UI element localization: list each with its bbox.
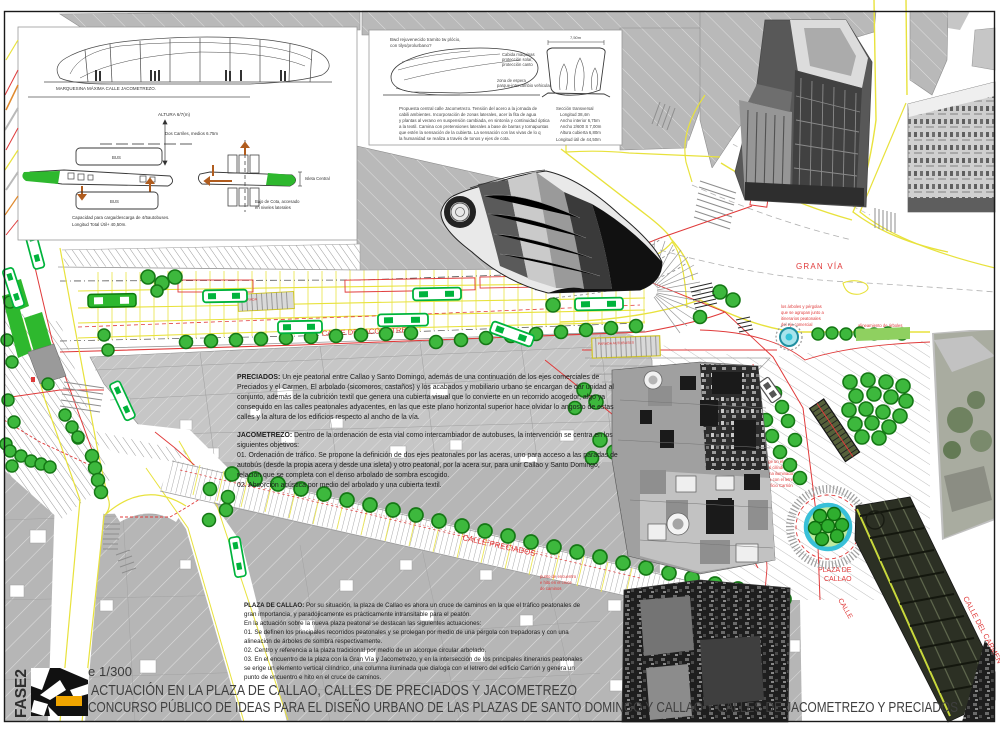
svg-text:alineación de árboles de sombr: alineación de árboles de sombra respecti…	[244, 638, 383, 645]
svg-text:e hito en el cruce: e hito en el cruce	[540, 580, 573, 585]
svg-text:PLAZA DE: PLAZA DE	[818, 567, 852, 574]
svg-text:JACOMETREZO: Dentro de la orde: JACOMETREZO: Dentro de la ordenación de …	[237, 432, 613, 439]
svg-text:protección canto: protección canto	[502, 62, 533, 67]
svg-text:ALTURA 6/7(m): ALTURA 6/7(m)	[158, 112, 191, 117]
svg-text:01. Ordenación de tráfico. Se: 01. Ordenación de tráfico. Se propone la…	[237, 452, 618, 459]
svg-text:PLAZA DE CALLAO: Por su situac: PLAZA DE CALLAO: Por su situación, la pl…	[244, 602, 581, 609]
svg-text:alineamiento de árboles: alineamiento de árboles	[858, 323, 902, 328]
svg-text:ACTUACIÓN EN LA PLAZA DE CALLA: ACTUACIÓN EN LA PLAZA DE CALLAO, CALLES …	[91, 682, 577, 699]
svg-text:Longitud Total Útil+ 40,50m.: Longitud Total Útil+ 40,50m.	[72, 222, 126, 227]
svg-text:Dos Carriles, medios 6.75m: Dos Carriles, medios 6.75m	[165, 131, 218, 136]
svg-text:la humanidad se realiza a: la humanidad se realiza a través de tono…	[399, 136, 510, 141]
svg-text:de caminos: de caminos	[540, 586, 561, 591]
svg-text:Ancho interior 6,75m: Ancho interior 6,75m	[560, 118, 600, 123]
svg-text:Longitud 38,4m: Longitud 38,4m	[560, 112, 590, 117]
svg-text:Bwd rejuvenecido tramito tw p: Bwd rejuvenecido tramito tw plócio,	[390, 37, 461, 42]
svg-text:los árboles y pérgolas: los árboles y pérgolas	[781, 304, 822, 309]
svg-text:Longitud útil de 44,50m: Longitud útil de 44,50m	[556, 137, 601, 142]
svg-text:MARQUESINA MÁXIMA CALLE JAC: MARQUESINA MÁXIMA CALLE JACOMETREZO.	[56, 85, 156, 91]
svg-text:Isleta Central: Isleta Central	[305, 176, 330, 181]
svg-text:CALLAO: CALLAO	[824, 576, 852, 583]
svg-text:CONCURSO PÚBLICO DE IDEAS PARA: CONCURSO PÚBLICO DE IDEAS PARA EL DISEÑO…	[88, 699, 958, 716]
svg-text:En la actuación sobre la nueva: En la actuación sobre la nueva plaza pea…	[244, 620, 482, 627]
svg-text:que se agrupan junto a: que se agrupan junto a	[781, 310, 825, 315]
svg-text:punto de encuentro e hito en e: punto de encuentro e hito en el cruce de…	[244, 674, 382, 681]
svg-text:Ancho 2/600 S 7,00m: Ancho 2/600 S 7,00m	[560, 124, 602, 129]
svg-text:FASE2: FASE2	[13, 669, 30, 718]
svg-text:conseguido en las calles peato: conseguido en las calles peatonales adya…	[237, 404, 614, 411]
svg-text:con tilys/prolurbano?: con tilys/prolurbano?	[390, 43, 432, 48]
svg-text:se erige un elemento vertical: se erige un elemento vertical cilíndrico…	[244, 665, 575, 672]
svg-text:03. En el encuentro de la plaz: 03. En el encuentro de la plaza con la G…	[244, 656, 582, 663]
svg-text:02. Centro y referencia a la p: 02. Centro y referencia a la plaza tradi…	[244, 647, 486, 654]
svg-text:parque-intercambio vehicular: parque-intercambio vehicular	[497, 83, 552, 88]
svg-text:y plantas al verano en suspe: y plantas al verano en suspensión cambia…	[399, 118, 550, 123]
svg-text:Preciados y el Carmen. El arbo: Preciados y el Carmen. El arbolado (sico…	[237, 384, 614, 391]
svg-text:02. Absorción acústica por med: 02. Absorción acústica por medio del arb…	[237, 482, 442, 489]
svg-text:punto de encuentro: punto de encuentro	[540, 574, 577, 579]
svg-text:conjunto, además de la cubrici: conjunto, además de la cubrición textil …	[237, 394, 605, 401]
svg-text:Bajo de Cota, accesado: Bajo de Cota, accesado	[255, 199, 300, 204]
svg-text:01. Se definen los principales: 01. Se definen los principales recorrido…	[244, 629, 569, 636]
svg-text:PRECIADOS: Un eje peatonal ent: PRECIADOS: Un eje peatonal entre Callao …	[237, 374, 600, 381]
svg-text:BUS: BUS	[110, 199, 119, 204]
svg-text:Altura cubierta 6,80m: Altura cubierta 6,80m	[560, 130, 601, 135]
svg-text:Sección transversal: Sección transversal	[556, 106, 594, 111]
svg-text:GRAN VÍA: GRAN VÍA	[796, 262, 844, 271]
svg-text:cabili ambientes. Incorporació: cabili ambientes. Incorporación de zonas…	[399, 112, 537, 117]
svg-text:gran importancia, y paradójica: gran importancia, y paradójicamente es p…	[244, 611, 471, 618]
svg-text:que estén la sensación de: que estén la sensación de la cubierta. L…	[399, 130, 541, 135]
svg-text:e 1/300: e 1/300	[88, 664, 132, 679]
svg-text:a la textil. Camina con pr: a la textil. Camina con pretensiones lat…	[399, 124, 549, 129]
svg-text:Propuesta central calle Jacome: Propuesta central calle Jacometrezo. Ten…	[399, 106, 538, 111]
svg-text:autobús (desde la propia acera: autobús (desde la propia acera y desde u…	[237, 462, 600, 469]
svg-text:siguientes objetivos:: siguientes objetivos:	[237, 442, 299, 449]
svg-text:7,50m: 7,50m	[570, 35, 582, 40]
svg-text:BUS: BUS	[112, 155, 121, 160]
svg-text:itinerarios peatonales: itinerarios peatonales	[781, 316, 821, 321]
svg-text:relación que se completa con e: relación que se completa con el denso ar…	[237, 472, 449, 479]
svg-text:calles y la altura de los edif: calles y la altura de los edificios resp…	[237, 414, 420, 421]
svg-text:en niveles laterales: en niveles laterales	[255, 205, 291, 210]
svg-text:Capacidad para carga/descarga: Capacidad para carga/descarga de 4/5auto…	[72, 215, 169, 220]
